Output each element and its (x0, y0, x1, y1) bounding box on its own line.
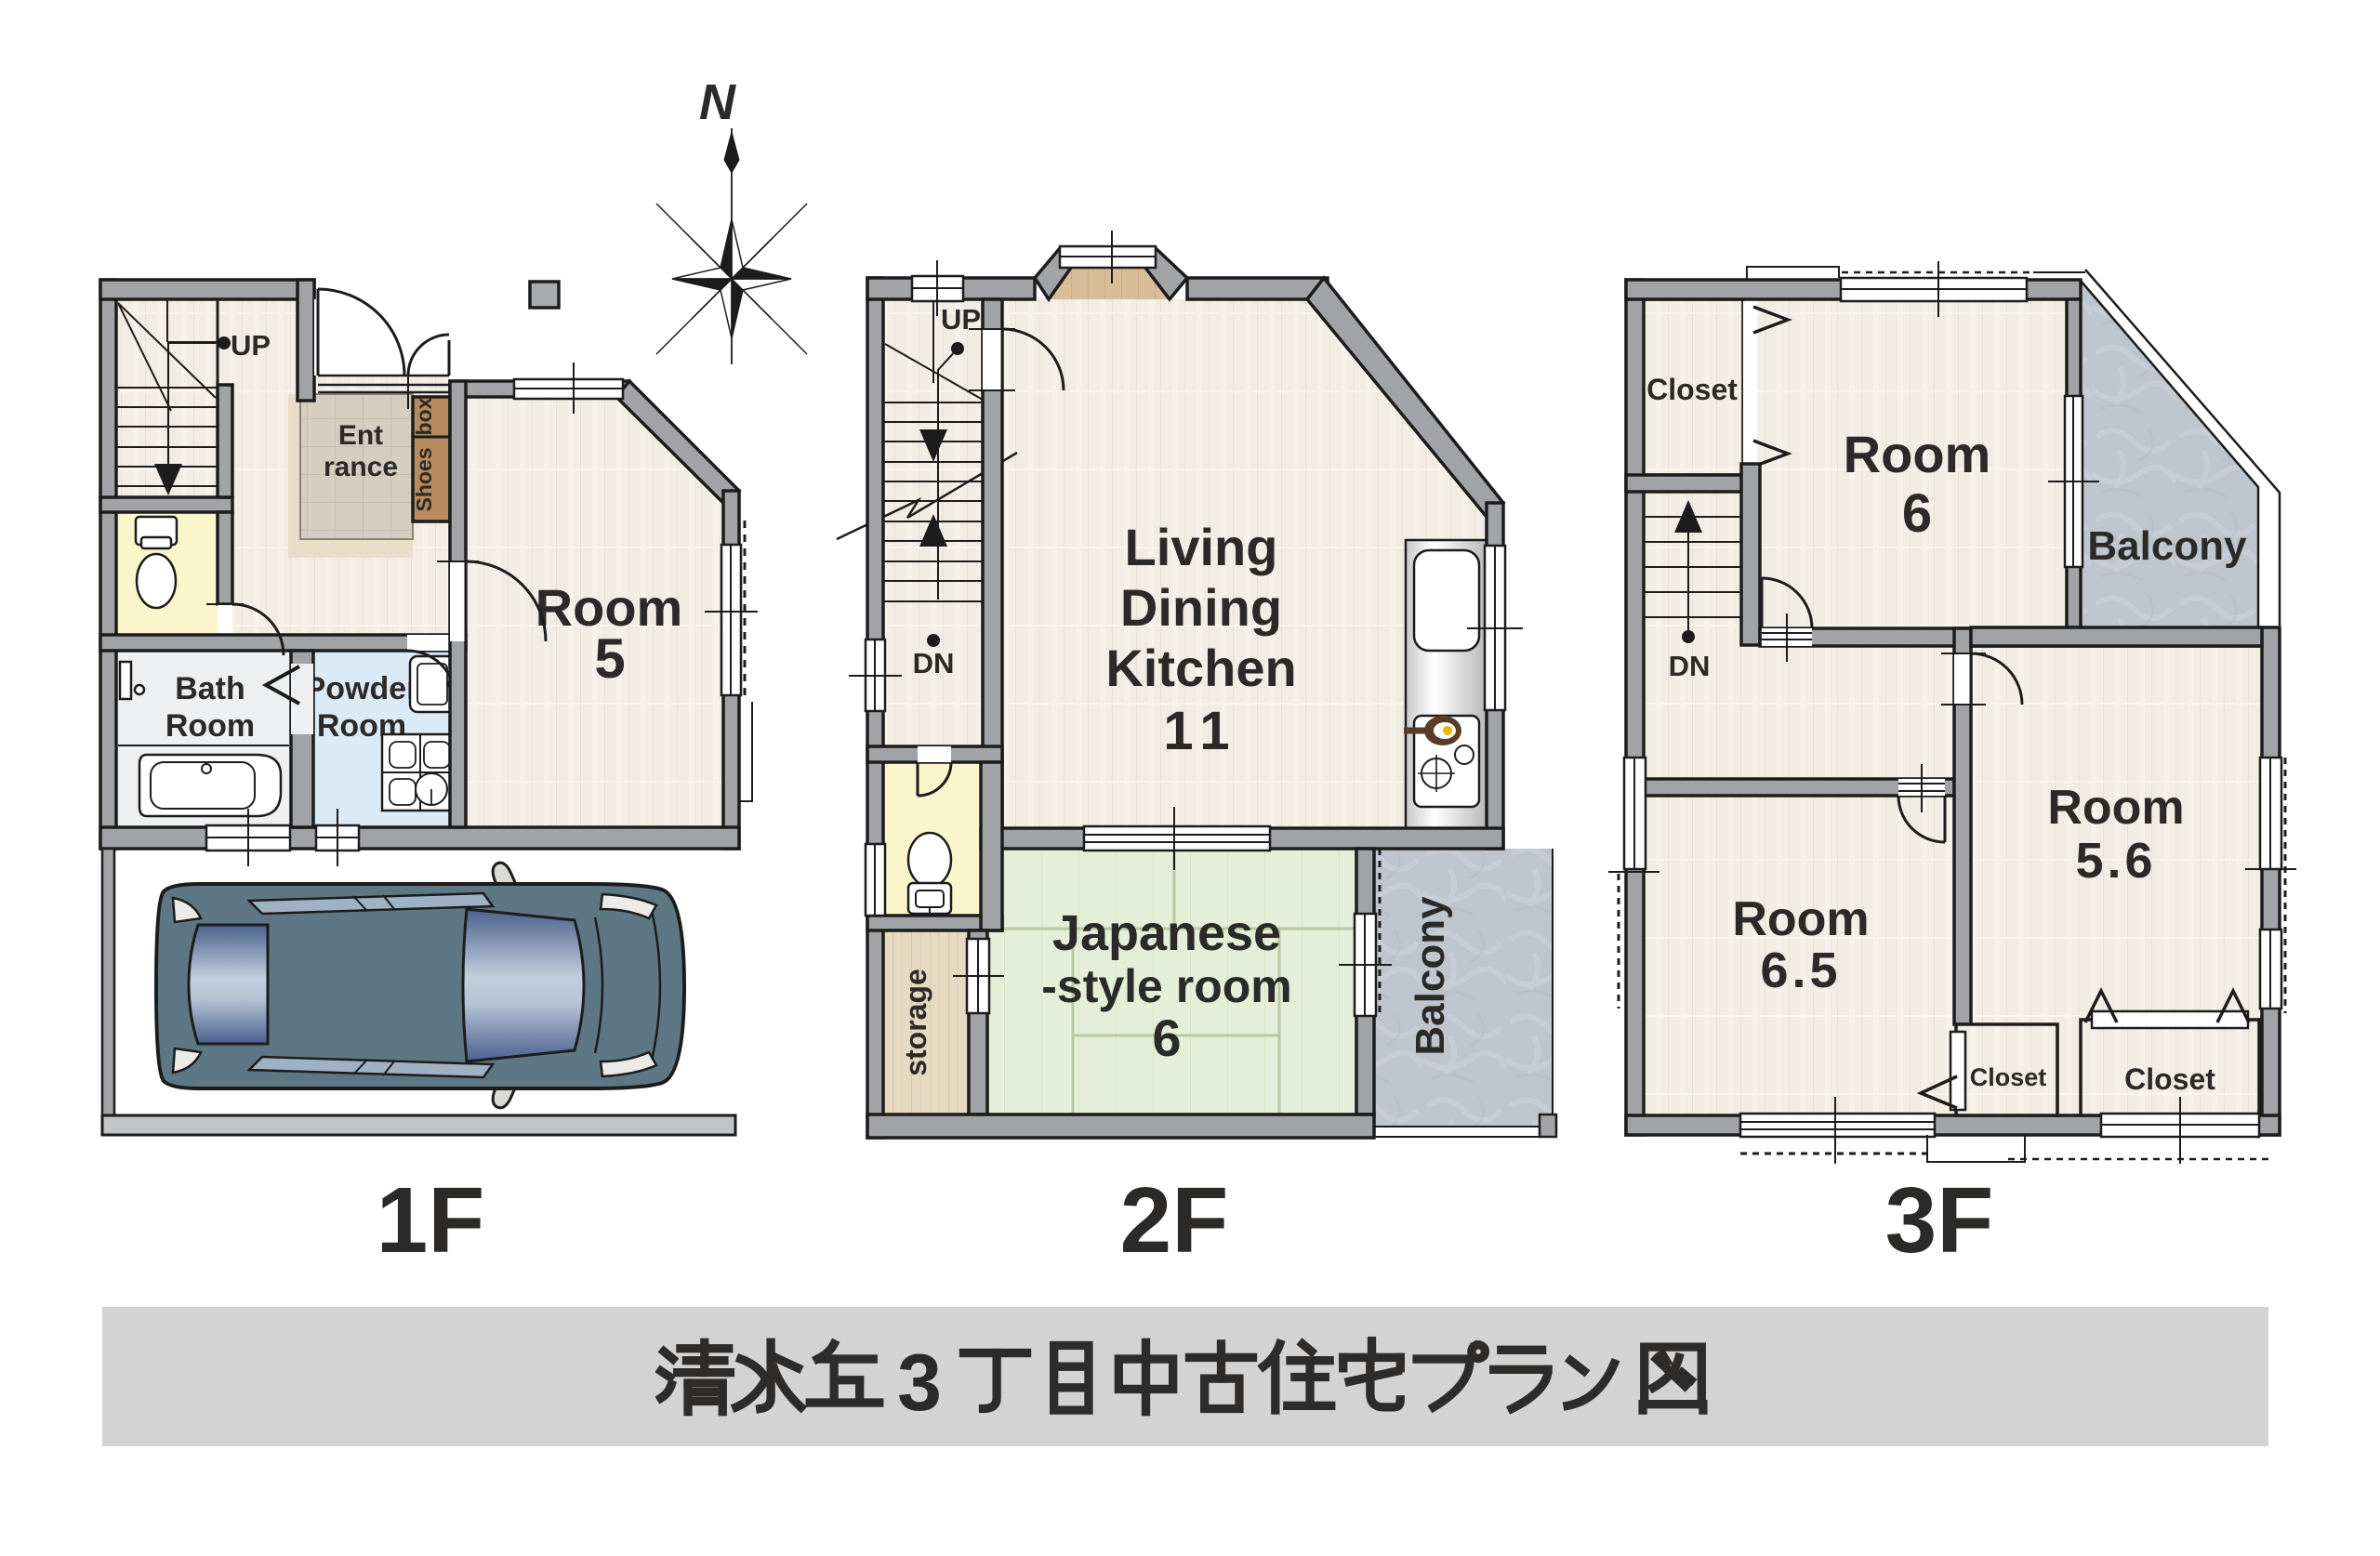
svg-text:UP: UP (941, 303, 981, 336)
svg-text:Kitchen: Kitchen (1105, 639, 1296, 697)
svg-text:Shoes: Shoes (412, 447, 436, 511)
svg-text:Living: Living (1125, 518, 1278, 576)
svg-text:box: box (412, 397, 436, 435)
svg-text:DN: DN (913, 647, 955, 679)
svg-text:N: N (699, 74, 736, 130)
svg-text:1F: 1F (377, 1168, 485, 1272)
svg-text:Japanese: Japanese (1052, 905, 1281, 961)
svg-text:Room: Room (2047, 781, 2184, 835)
svg-text:Room: Room (1732, 892, 1869, 946)
svg-text:5.6: 5.6 (2075, 833, 2156, 889)
svg-text:Room: Room (165, 708, 255, 744)
svg-text:storage: storage (899, 969, 932, 1076)
svg-text:Closet: Closet (1970, 1063, 2047, 1091)
svg-text:Balcony: Balcony (2087, 523, 2247, 569)
svg-text:2F: 2F (1120, 1168, 1229, 1272)
svg-text:Closet: Closet (2124, 1062, 2215, 1096)
svg-text:Ent: Ent (338, 420, 383, 451)
svg-text:-style room: -style room (1041, 960, 1292, 1012)
svg-text:6.5: 6.5 (1760, 943, 1841, 998)
svg-text:6: 6 (1152, 1009, 1181, 1067)
svg-text:6: 6 (1902, 483, 1932, 544)
svg-text:Powder: Powder (305, 671, 419, 706)
svg-text:Closet: Closet (1646, 373, 1738, 406)
svg-text:3F: 3F (1885, 1168, 1994, 1272)
svg-text:5: 5 (594, 627, 625, 690)
svg-text:Balcony: Balcony (1408, 896, 1453, 1056)
svg-text:rance: rance (324, 452, 398, 482)
svg-text:UP: UP (231, 329, 271, 362)
svg-text:DN: DN (1669, 650, 1711, 682)
svg-text:3: 3 (897, 1338, 942, 1428)
svg-text:Room: Room (1844, 425, 1991, 483)
svg-text:11: 11 (1163, 701, 1238, 761)
svg-text:Dining: Dining (1120, 578, 1282, 637)
svg-text:Bath: Bath (175, 671, 245, 706)
